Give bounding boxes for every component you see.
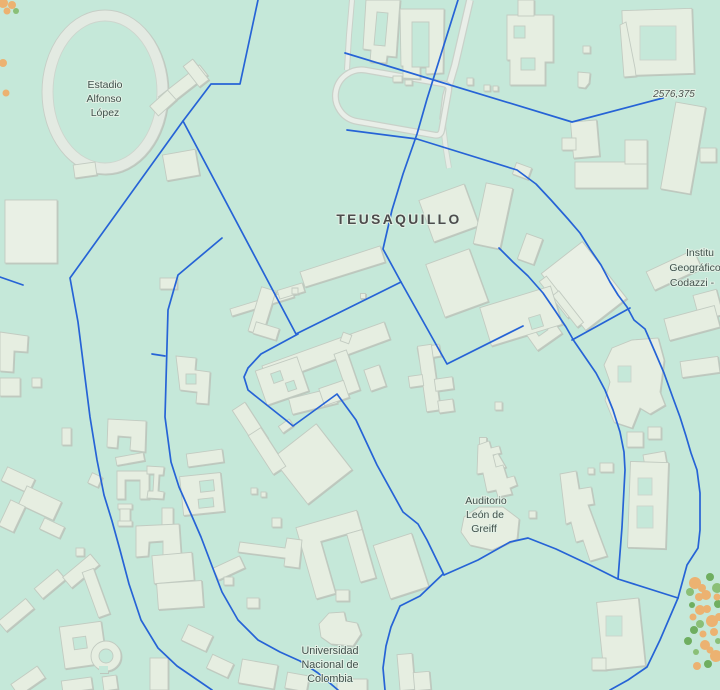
svg-text:López: López <box>91 107 120 119</box>
svg-text:Codazzi -: Codazzi - <box>670 277 715 289</box>
svg-text:Estadio: Estadio <box>87 79 122 91</box>
svg-text:Colombia: Colombia <box>307 673 353 685</box>
svg-text:2576,375: 2576,375 <box>652 89 695 100</box>
svg-text:TEUSAQUILLO: TEUSAQUILLO <box>336 212 461 227</box>
svg-text:Auditorio: Auditorio <box>465 495 507 507</box>
svg-text:Alfonso: Alfonso <box>86 93 121 105</box>
svg-text:Nacional de: Nacional de <box>301 659 358 671</box>
svg-text:Universidad: Universidad <box>301 645 358 657</box>
svg-text:Institu: Institu <box>686 247 714 259</box>
svg-text:Greiff: Greiff <box>471 523 497 535</box>
svg-text:Geográfico: Geográfico <box>669 262 720 274</box>
svg-text:León de: León de <box>466 509 504 521</box>
